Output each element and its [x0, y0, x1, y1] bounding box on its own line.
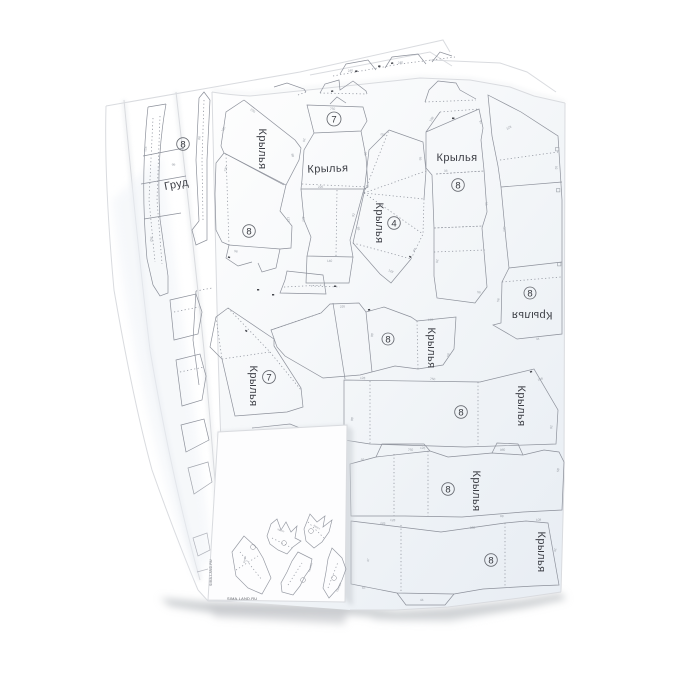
svg-text:750: 750 [408, 448, 414, 452]
svg-text:8: 8 [458, 408, 463, 419]
svg-text:226: 226 [340, 304, 346, 309]
svg-text:92: 92 [554, 166, 558, 170]
svg-text:8: 8 [445, 485, 450, 496]
svg-text:8: 8 [455, 181, 460, 192]
svg-text:Крылья: Крылья [373, 203, 385, 244]
svg-text:980: 980 [500, 448, 506, 452]
svg-text:128: 128 [428, 318, 434, 322]
svg-text:8: 8 [488, 556, 493, 567]
svg-text:SIMA-LAND.RU: SIMA-LAND.RU [227, 596, 257, 601]
svg-text:4: 4 [391, 219, 396, 230]
svg-text:92: 92 [435, 259, 439, 263]
svg-text:240: 240 [398, 60, 404, 65]
svg-text:Крылья: Крылья [247, 366, 259, 407]
svg-text:88: 88 [500, 514, 504, 518]
svg-text:226: 226 [318, 185, 324, 189]
svg-text:240: 240 [348, 68, 354, 73]
svg-text:88: 88 [350, 417, 354, 421]
svg-text:38: 38 [444, 169, 448, 173]
svg-text:56: 56 [484, 202, 488, 206]
svg-text:980: 980 [470, 525, 476, 530]
svg-text:120: 120 [502, 226, 506, 232]
svg-text:88: 88 [370, 333, 374, 337]
svg-text:58: 58 [556, 468, 560, 472]
svg-text:140: 140 [327, 259, 333, 263]
svg-text:750: 750 [430, 377, 436, 381]
svg-text:8: 8 [180, 140, 185, 151]
svg-text:8: 8 [246, 227, 251, 238]
svg-text:Крылья: Крылья [535, 532, 547, 573]
svg-text:8: 8 [385, 335, 390, 346]
svg-text:7: 7 [266, 373, 271, 384]
svg-text:8: 8 [527, 289, 532, 300]
svg-text:Крылья: Крылья [256, 129, 268, 170]
svg-text:108: 108 [536, 518, 542, 522]
svg-text:Крылья: Крылья [512, 309, 553, 321]
svg-text:750: 750 [330, 107, 336, 111]
svg-text:SIMA-LAND.RU: SIMA-LAND.RU [209, 559, 213, 586]
svg-text:Крылья: Крылья [515, 386, 527, 427]
svg-text:128: 128 [360, 376, 366, 380]
svg-text:Крылья: Крылья [470, 471, 482, 512]
svg-text:44: 44 [420, 598, 424, 602]
svg-text:42: 42 [553, 548, 557, 552]
svg-text:128: 128 [301, 216, 305, 222]
svg-text:Крылья: Крылья [437, 152, 478, 164]
svg-text:126: 126 [420, 446, 426, 450]
svg-text:92: 92 [302, 138, 306, 142]
svg-text:126: 126 [380, 521, 386, 526]
svg-text:Крылья: Крылья [307, 162, 348, 175]
svg-text:7: 7 [331, 115, 336, 126]
svg-text:44: 44 [536, 337, 540, 341]
svg-text:Крылья: Крылья [425, 328, 437, 369]
svg-text:128: 128 [390, 518, 396, 522]
svg-text:47: 47 [366, 558, 370, 562]
